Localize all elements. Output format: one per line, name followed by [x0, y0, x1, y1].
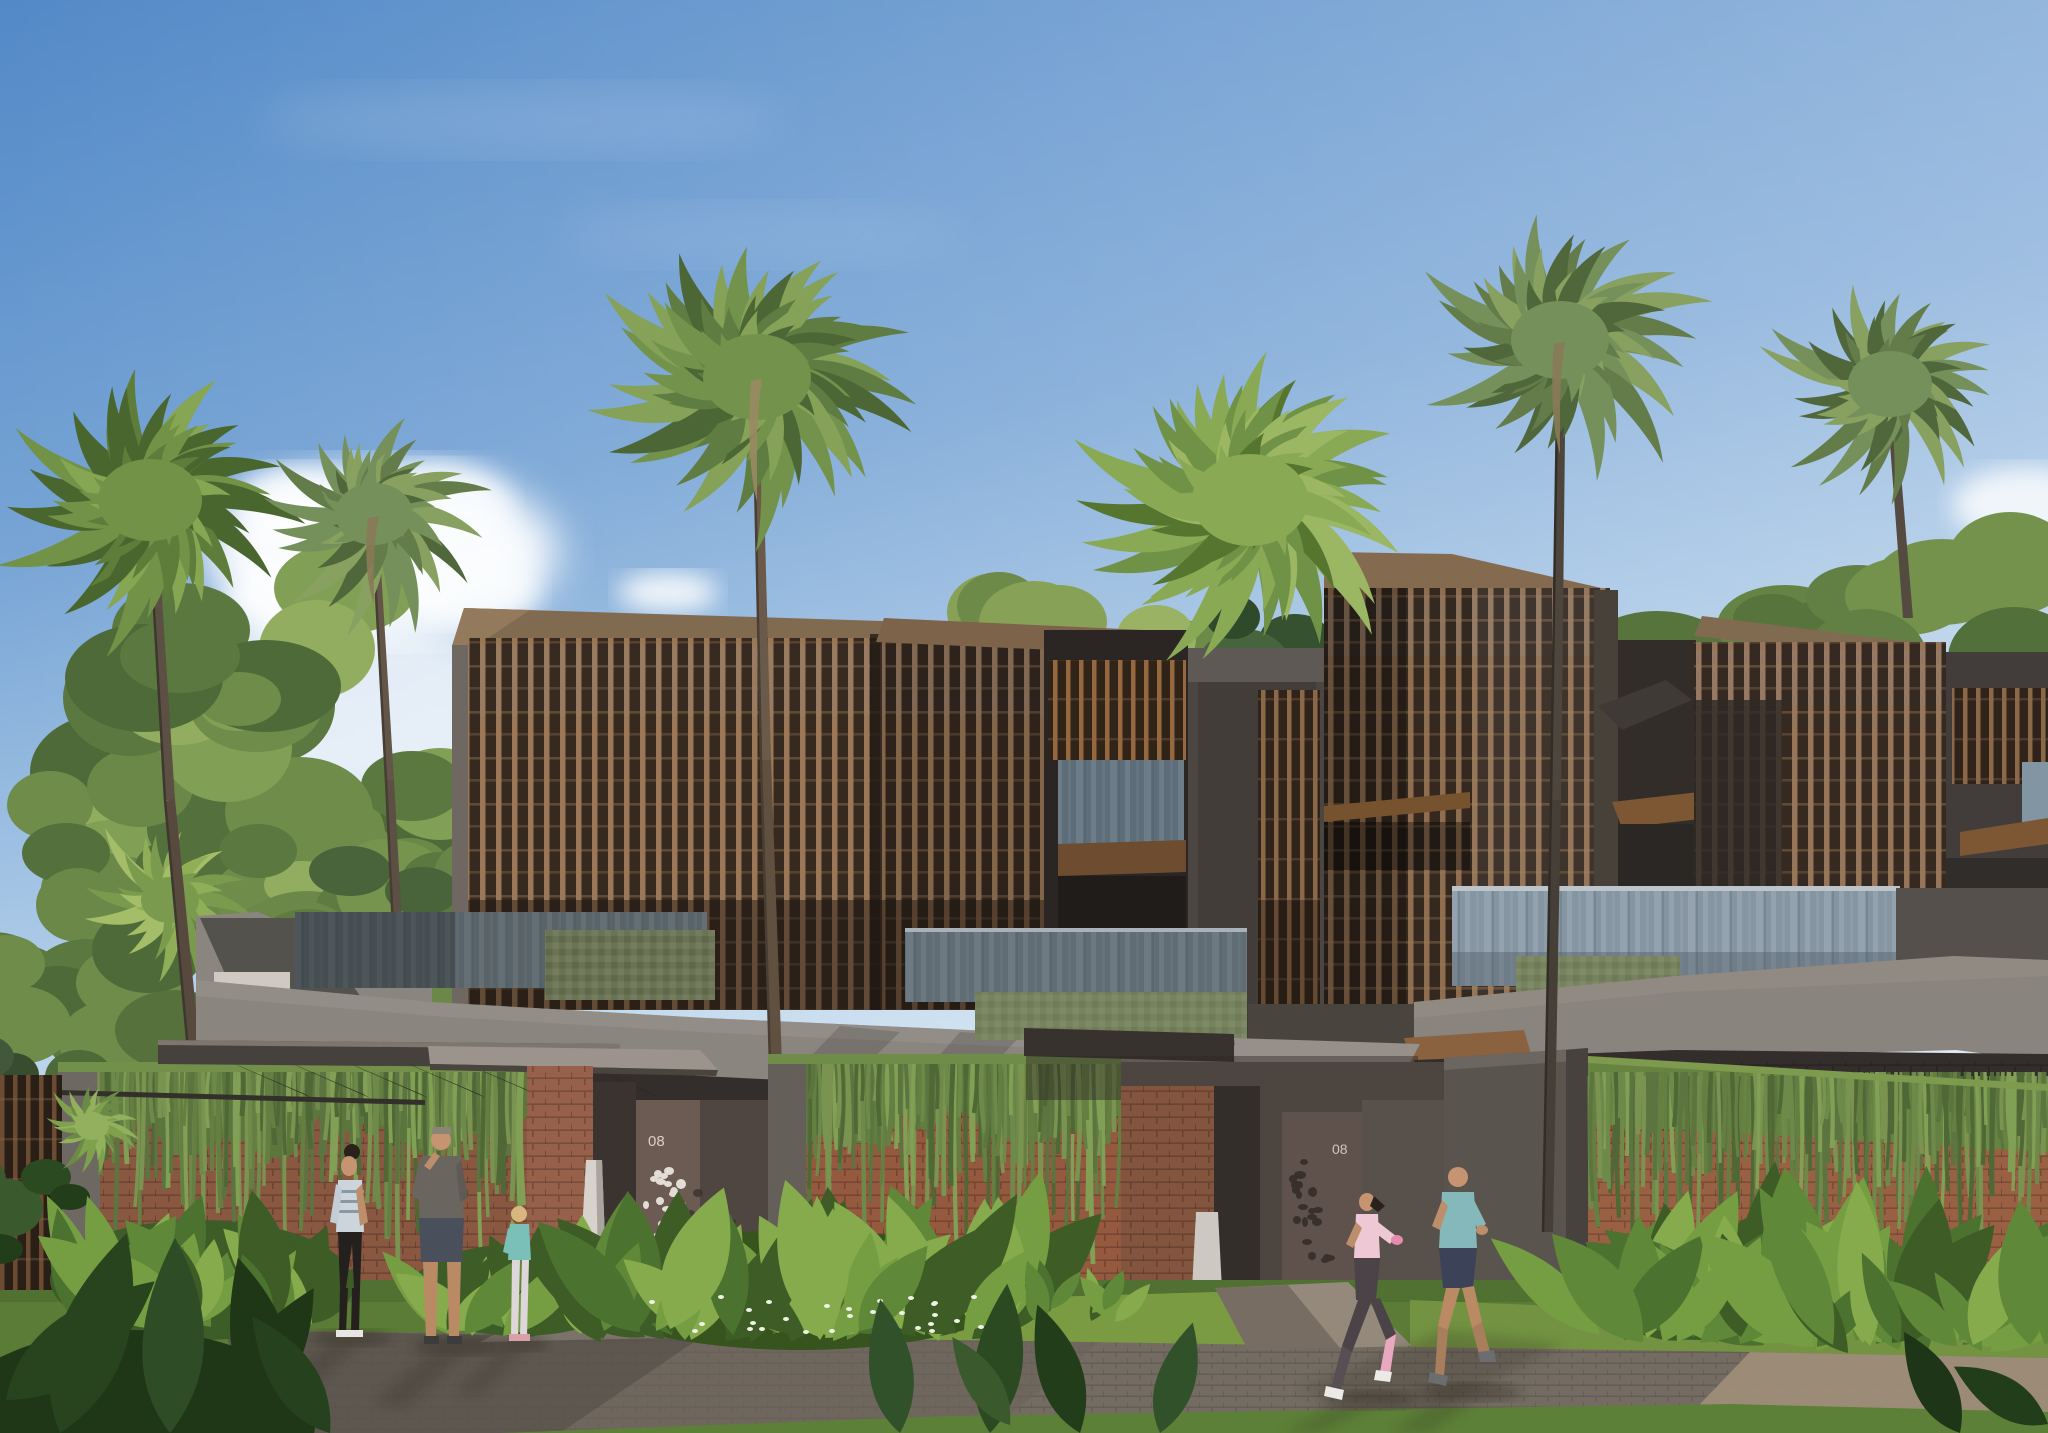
svg-text:08: 08	[1332, 1141, 1348, 1157]
svg-text:08: 08	[648, 1133, 665, 1150]
